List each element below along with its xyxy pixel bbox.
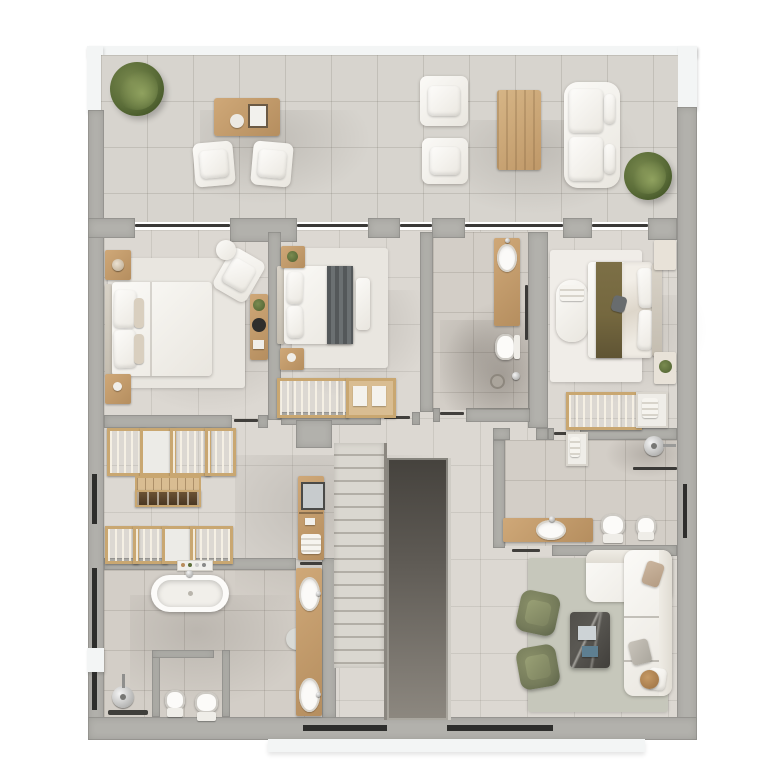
shower-drain (490, 374, 505, 389)
toilet-main-bath (195, 692, 218, 713)
table-tray (230, 114, 244, 128)
terrace-dining-table (214, 98, 280, 136)
shower-glass-ensuite (525, 285, 528, 340)
sliding-door-glass (297, 224, 368, 227)
shower-arm (663, 444, 676, 447)
side-table-wood (640, 670, 659, 689)
wall-terrace-divider (563, 218, 592, 238)
chaise-towel (560, 285, 584, 301)
bidet-tank-right-bath (638, 532, 654, 540)
sink-right-bath (536, 520, 566, 540)
terrace-armchair-2 (250, 140, 294, 187)
window-left-pier (87, 648, 104, 672)
wardrobe-right-bedroom (566, 392, 642, 430)
duvet-fold (150, 282, 152, 376)
window-left-3 (92, 672, 97, 710)
wall-ensuite-right-bedroom (528, 232, 548, 428)
wall-terrace-divider (432, 218, 465, 238)
door-ensuite (440, 412, 464, 415)
sliding-door-glass (135, 224, 230, 227)
table-book-blue (582, 646, 598, 657)
ensuite-sink (497, 244, 517, 272)
sofa-cushion (569, 137, 603, 181)
wardrobe-middle-bedroom (277, 378, 349, 418)
cabinet-towels (570, 437, 580, 457)
shower-head-center (651, 443, 657, 449)
closet-top-row-c (205, 428, 236, 476)
terrace-armchair-4 (422, 138, 468, 184)
wardrobe-right-open-shelf (636, 392, 668, 428)
folded-linen (353, 386, 367, 406)
armchair-cushion (221, 256, 258, 293)
parapet-right (678, 46, 697, 109)
shower-head-main-bath (112, 686, 134, 708)
shower-glass-right-bath (633, 467, 677, 470)
bed-left-accent-pillow (134, 334, 144, 364)
shelf-disc (252, 318, 266, 332)
folded-linen (372, 386, 386, 406)
wall-outer-bottom (88, 717, 697, 740)
terrace-armchair-3 (420, 76, 468, 126)
ensuite-toilet-tank (514, 335, 520, 359)
stairwell-void (387, 458, 448, 720)
ensuite-toilet (495, 334, 516, 360)
armchair-cushion (524, 599, 552, 627)
sliding-door-glass (592, 224, 648, 227)
wall-terrace-divider (88, 218, 135, 238)
bed-left-headboard (105, 284, 112, 376)
window-right (683, 484, 687, 538)
niche-shelf-line (299, 512, 323, 514)
chaise-lounge (556, 280, 588, 342)
window-left-1 (92, 474, 97, 524)
niche-towels (301, 534, 321, 554)
wall-outer-right (677, 107, 697, 740)
vanity-faucet-1 (316, 591, 321, 596)
bed-middle-bench (356, 278, 370, 330)
decor-item (113, 382, 122, 391)
nightstand-right-top (654, 240, 676, 270)
nightstand-plant (287, 251, 298, 262)
door-bathroom-main (300, 562, 324, 565)
table-art-frame (248, 104, 268, 128)
window-bottom-1 (303, 725, 387, 731)
sliding-door-glass (465, 224, 563, 227)
nightstand-middle-bottom (280, 348, 304, 370)
sofa-lumbar-pillow (604, 94, 615, 124)
toilet-right-bath (601, 514, 625, 536)
wall-under-ensuite (433, 408, 440, 422)
wc-wall-top (152, 650, 214, 658)
bathtub-drain (188, 591, 193, 596)
side-table-round (216, 240, 236, 260)
bidet-main-bath (165, 690, 185, 710)
door-bath-right (512, 549, 540, 552)
wc-wall-right (222, 650, 230, 717)
wall-stairs-stub (296, 420, 332, 448)
stairwell-edge (448, 458, 451, 720)
wall-under-middle-bedroom (412, 412, 420, 425)
wall-terrace-divider (230, 218, 297, 242)
shelf-towels (642, 398, 658, 418)
bottle (188, 563, 192, 567)
wall-middle-ensuite (420, 232, 433, 412)
nightstand-middle-top (281, 246, 305, 268)
wc-wall-left (152, 650, 160, 717)
faucet-right-bath (549, 516, 555, 522)
bottle (202, 563, 206, 567)
armchair-cushion (524, 653, 552, 681)
terrace-coffee-table (497, 90, 541, 170)
shower-pole (122, 674, 125, 688)
armchair-green-2 (515, 643, 562, 691)
nightstand-left-bottom (105, 374, 131, 404)
wall-under-left-bedroom (258, 415, 268, 428)
table-book (578, 626, 596, 640)
laundry-niche (298, 476, 324, 560)
toilet-tank-main-bath (197, 712, 216, 721)
bath-tray (177, 560, 213, 571)
bed-right-headboard (652, 264, 662, 356)
wall-landing-bathroom (493, 428, 510, 440)
shower-head-center (120, 694, 126, 700)
shower-mixer (512, 372, 520, 380)
bottle (181, 563, 185, 567)
parapet-bottom (268, 739, 645, 752)
window-bottom-2 (447, 725, 553, 731)
wardrobe-middle-open-shelf (346, 378, 396, 418)
ensuite-faucet (505, 238, 510, 243)
wall-under-ensuite (466, 408, 530, 422)
towel-cabinet-right-bath (566, 432, 588, 466)
nightstand-plant (659, 360, 672, 373)
bed-middle-pillow (286, 306, 303, 339)
shelf-plant (253, 299, 265, 311)
armchair-cushion (199, 149, 229, 179)
shelf-box (253, 340, 264, 349)
bidet-tank-main-bath (167, 708, 183, 717)
plant-terrace-right (624, 152, 672, 200)
bed-middle-runner (327, 266, 353, 344)
sofa-cushion (569, 89, 603, 133)
plant-terrace-left (110, 62, 164, 116)
armchair-cushion (428, 86, 460, 116)
cushion-seam (624, 616, 659, 618)
closet-island-drawers (135, 490, 201, 507)
wall-terrace-divider (368, 218, 400, 238)
stair-treads (334, 443, 384, 668)
decor-vase (287, 353, 296, 362)
terrace-sofa (564, 82, 620, 188)
bed-middle-headboard (277, 266, 284, 344)
armchair-cushion (430, 147, 460, 175)
wall-under-left-bedroom (104, 415, 232, 428)
wall-terrace-divider (648, 218, 677, 240)
shower-linear-drain (108, 710, 148, 715)
bed-left-accent-pillow (134, 298, 144, 328)
washer-panel (301, 482, 325, 510)
toilet-tank-right-bath (603, 534, 623, 543)
door-left-bedroom (234, 419, 258, 422)
closet-bottom-row-c (190, 526, 233, 564)
terrace-armchair-1 (192, 140, 236, 187)
armchair-cushion (257, 149, 287, 179)
bed-middle-pillow (286, 272, 303, 305)
table-lamp (112, 259, 124, 271)
bottle (195, 563, 199, 567)
bathtub-faucet (186, 570, 193, 577)
wall-landing-bathroom (536, 428, 548, 440)
sofa-lumbar-pillow (604, 144, 615, 174)
shower-head-right-bath (644, 436, 664, 456)
ladder-shelf (250, 294, 268, 360)
coffee-table-marble (570, 612, 610, 668)
window-left-2 (92, 568, 97, 648)
nightstand-left-top (105, 250, 131, 280)
sliding-door-glass (400, 224, 432, 227)
floor-plan-render (0, 0, 780, 780)
niche-soap (305, 518, 315, 525)
vanity-faucet-2 (316, 692, 321, 697)
nightstand-right-bottom (654, 352, 676, 384)
